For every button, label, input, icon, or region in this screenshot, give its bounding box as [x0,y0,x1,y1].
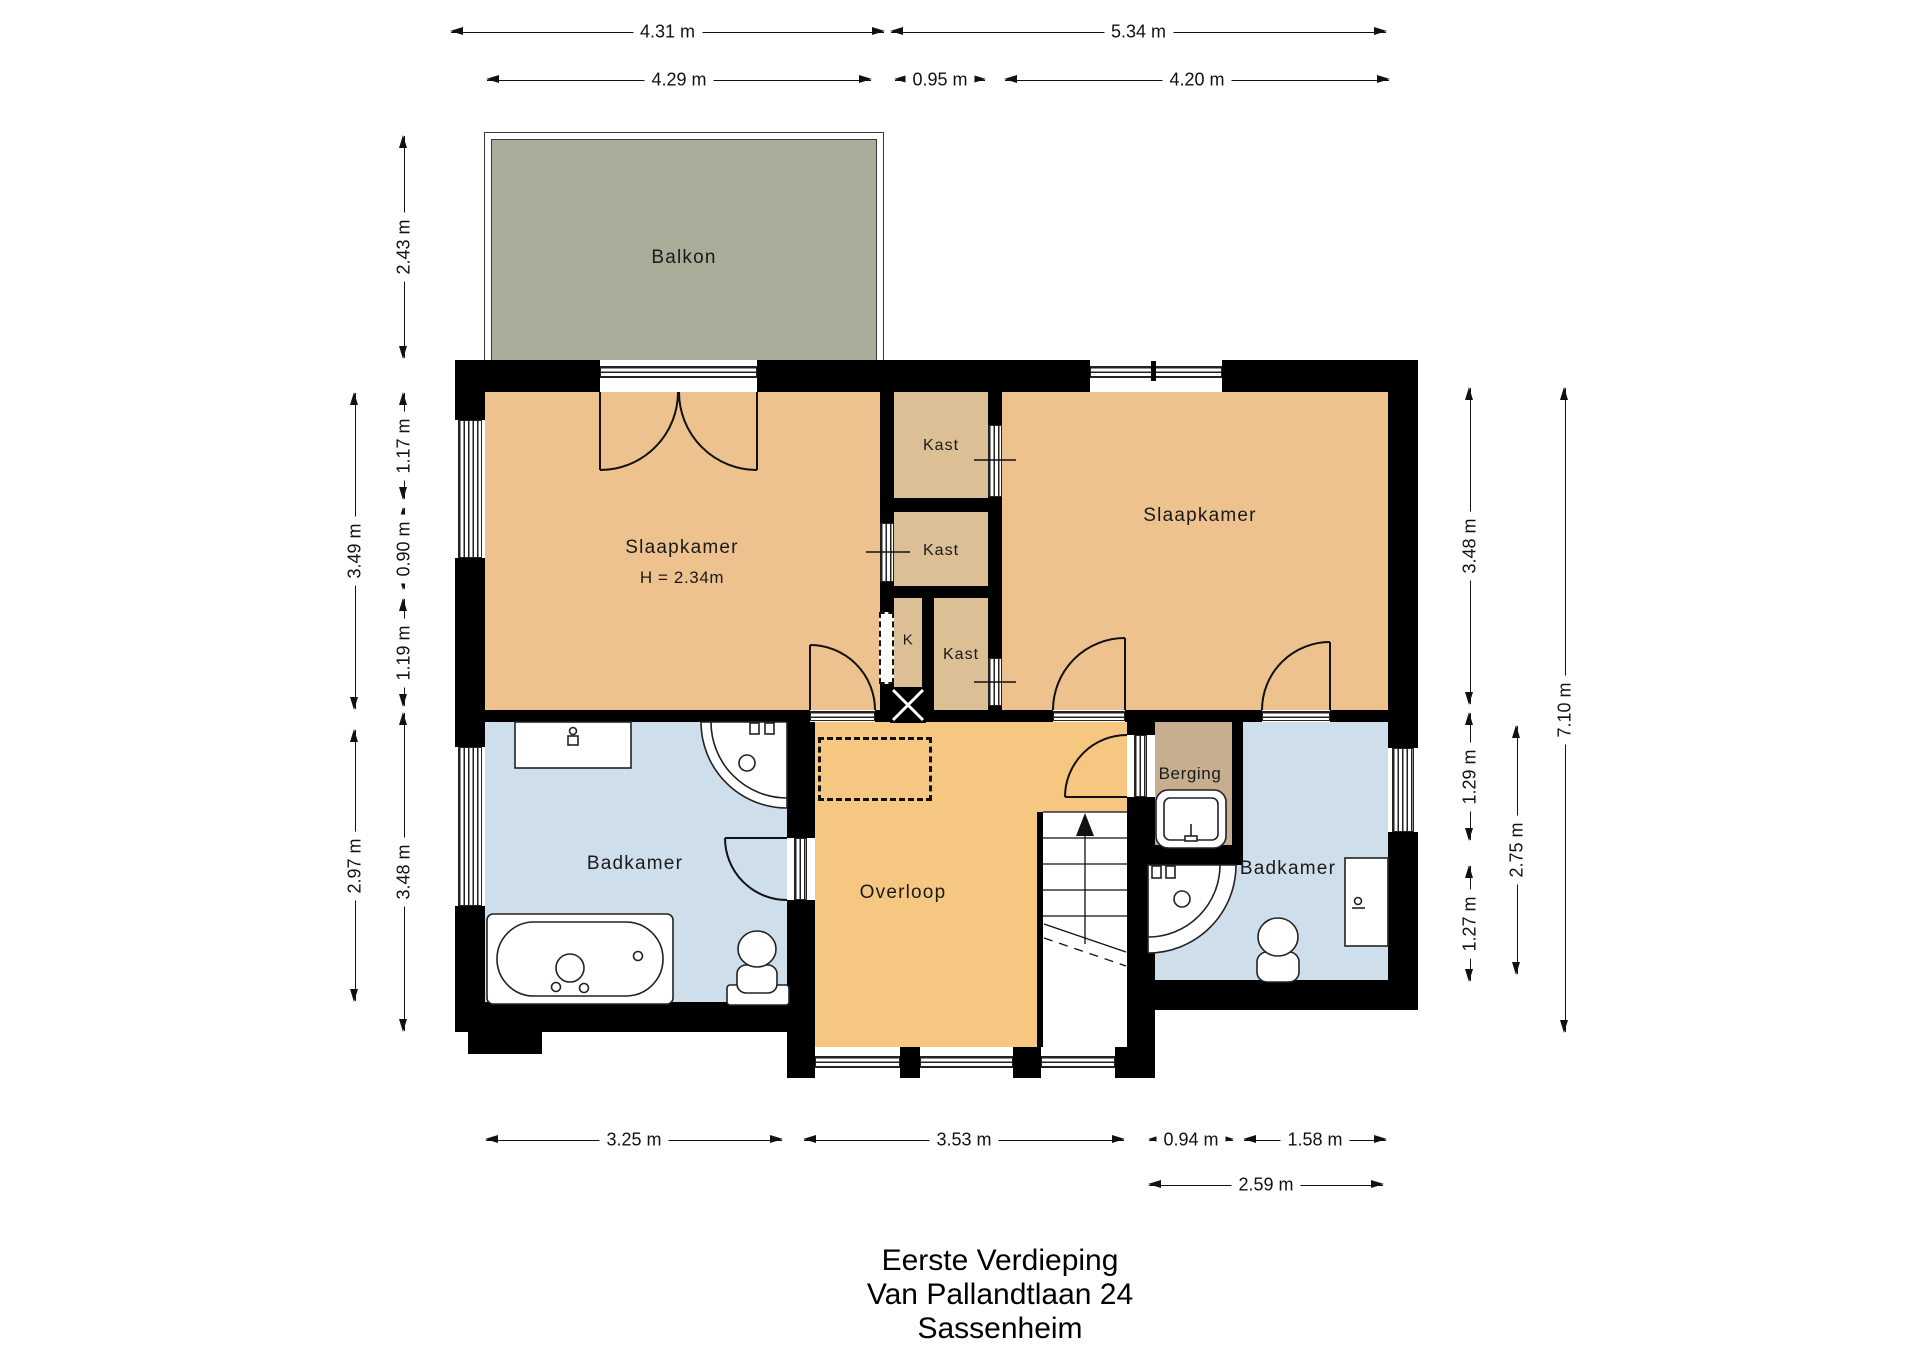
room-label-balkon: Balkon [651,247,716,269]
plan-title: Eerste Verdieping Van Pallandtlaan 24 Sa… [867,1244,1133,1346]
title-line-city: Sassenheim [867,1312,1133,1346]
shaft-x-icon [893,690,923,720]
room-label-kast-bottom: Kast [943,646,979,664]
dimension-right-b1: 2.75 m [1508,725,1526,975]
dimension-right-a2: 1.29 m [1461,712,1479,841]
sliding-door-ticks [866,460,1016,682]
dimension-top-3: 4.29 m [486,71,872,89]
floorplan-page: Balkon Slaapkamer H = 2.34m Kast Kast K … [0,0,1920,1358]
plan-symbols-overlay [0,0,1920,1358]
room-label-badkamer-left: Badkamer [587,853,683,875]
dimension-left-inner-1: 2.43 m [395,135,413,359]
toilet [1257,918,1299,982]
room-label-slaapkamer-right: Slaapkamer [1143,505,1256,527]
dimension-left-inner-2: 1.17 m [395,392,413,500]
dimension-top-2: 5.34 m [890,23,1387,41]
dimension-left-outer-2: 2.97 m [346,729,364,1002]
dimension-right-c1: 7.10 m [1556,387,1574,1033]
room-label-kast-top: Kast [923,437,959,455]
dimension-left-inner-3: 0.90 m [395,507,413,590]
dimension-bottom-3: 0.94 m [1148,1131,1234,1149]
dimension-top-5: 4.20 m [1004,71,1390,89]
dimension-top-4: 0.95 m [894,71,986,89]
room-label-berging: Berging [1159,764,1222,784]
dimension-right-a1: 3.48 m [1461,387,1479,705]
dimension-left-inner-4: 1.19 m [395,598,413,707]
room-label-overloop: Overloop [860,882,947,904]
berging-sink-unit [1156,790,1226,848]
balcony-french-doors [600,392,757,470]
washbasin-counter [1345,858,1388,946]
room-label-slaapkamer-left: Slaapkamer [625,537,738,559]
room-label-badkamer-right: Badkamer [1240,858,1336,880]
dimension-right-a3: 1.27 m [1461,865,1479,982]
room-label-kast-mid: Kast [923,542,959,560]
dimension-top-1: 4.31 m [450,23,885,41]
dimension-bottom-5: 2.59 m [1148,1176,1384,1194]
toilet [727,931,789,1005]
dimension-left-inner-5: 3.48 m [395,712,413,1032]
dimension-bottom-2: 3.53 m [803,1131,1125,1149]
room-label-height: H = 2.34m [640,568,724,588]
dimension-left-outer-1: 3.49 m [346,392,364,710]
corner-shower [701,722,787,808]
stairs-up-arrow-icon [1076,813,1094,836]
room-label-k: K [903,632,914,649]
dimension-bottom-4: 1.58 m [1243,1131,1387,1149]
title-line-floor: Eerste Verdieping [867,1244,1133,1278]
dimension-bottom-1: 3.25 m [485,1131,783,1149]
title-line-address: Van Pallandtlaan 24 [867,1278,1133,1312]
